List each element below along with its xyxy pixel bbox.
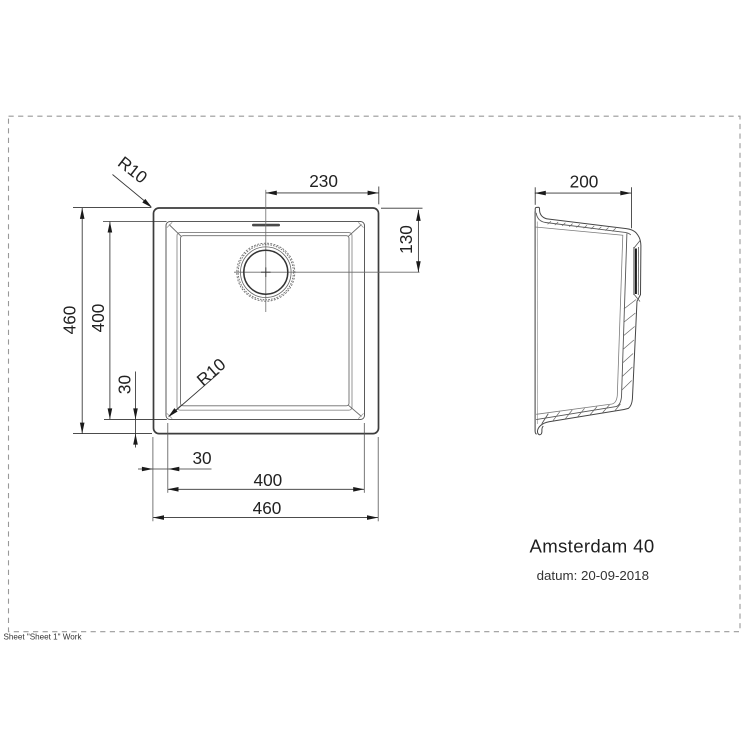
svg-text:Sheet "Sheet 1" Work: Sheet "Sheet 1" Work (4, 633, 83, 642)
svg-text:230: 230 (309, 171, 338, 191)
svg-text:400: 400 (254, 470, 283, 490)
svg-text:200: 200 (570, 172, 599, 192)
svg-text:400: 400 (88, 304, 108, 333)
svg-text:460: 460 (253, 498, 282, 518)
svg-text:130: 130 (396, 225, 416, 254)
svg-text:30: 30 (115, 375, 135, 394)
svg-text:460: 460 (60, 306, 80, 335)
svg-text:Amsterdam 40: Amsterdam 40 (529, 536, 654, 557)
svg-text:30: 30 (192, 448, 211, 468)
svg-text:datum: 20-09-2018: datum: 20-09-2018 (537, 568, 649, 583)
